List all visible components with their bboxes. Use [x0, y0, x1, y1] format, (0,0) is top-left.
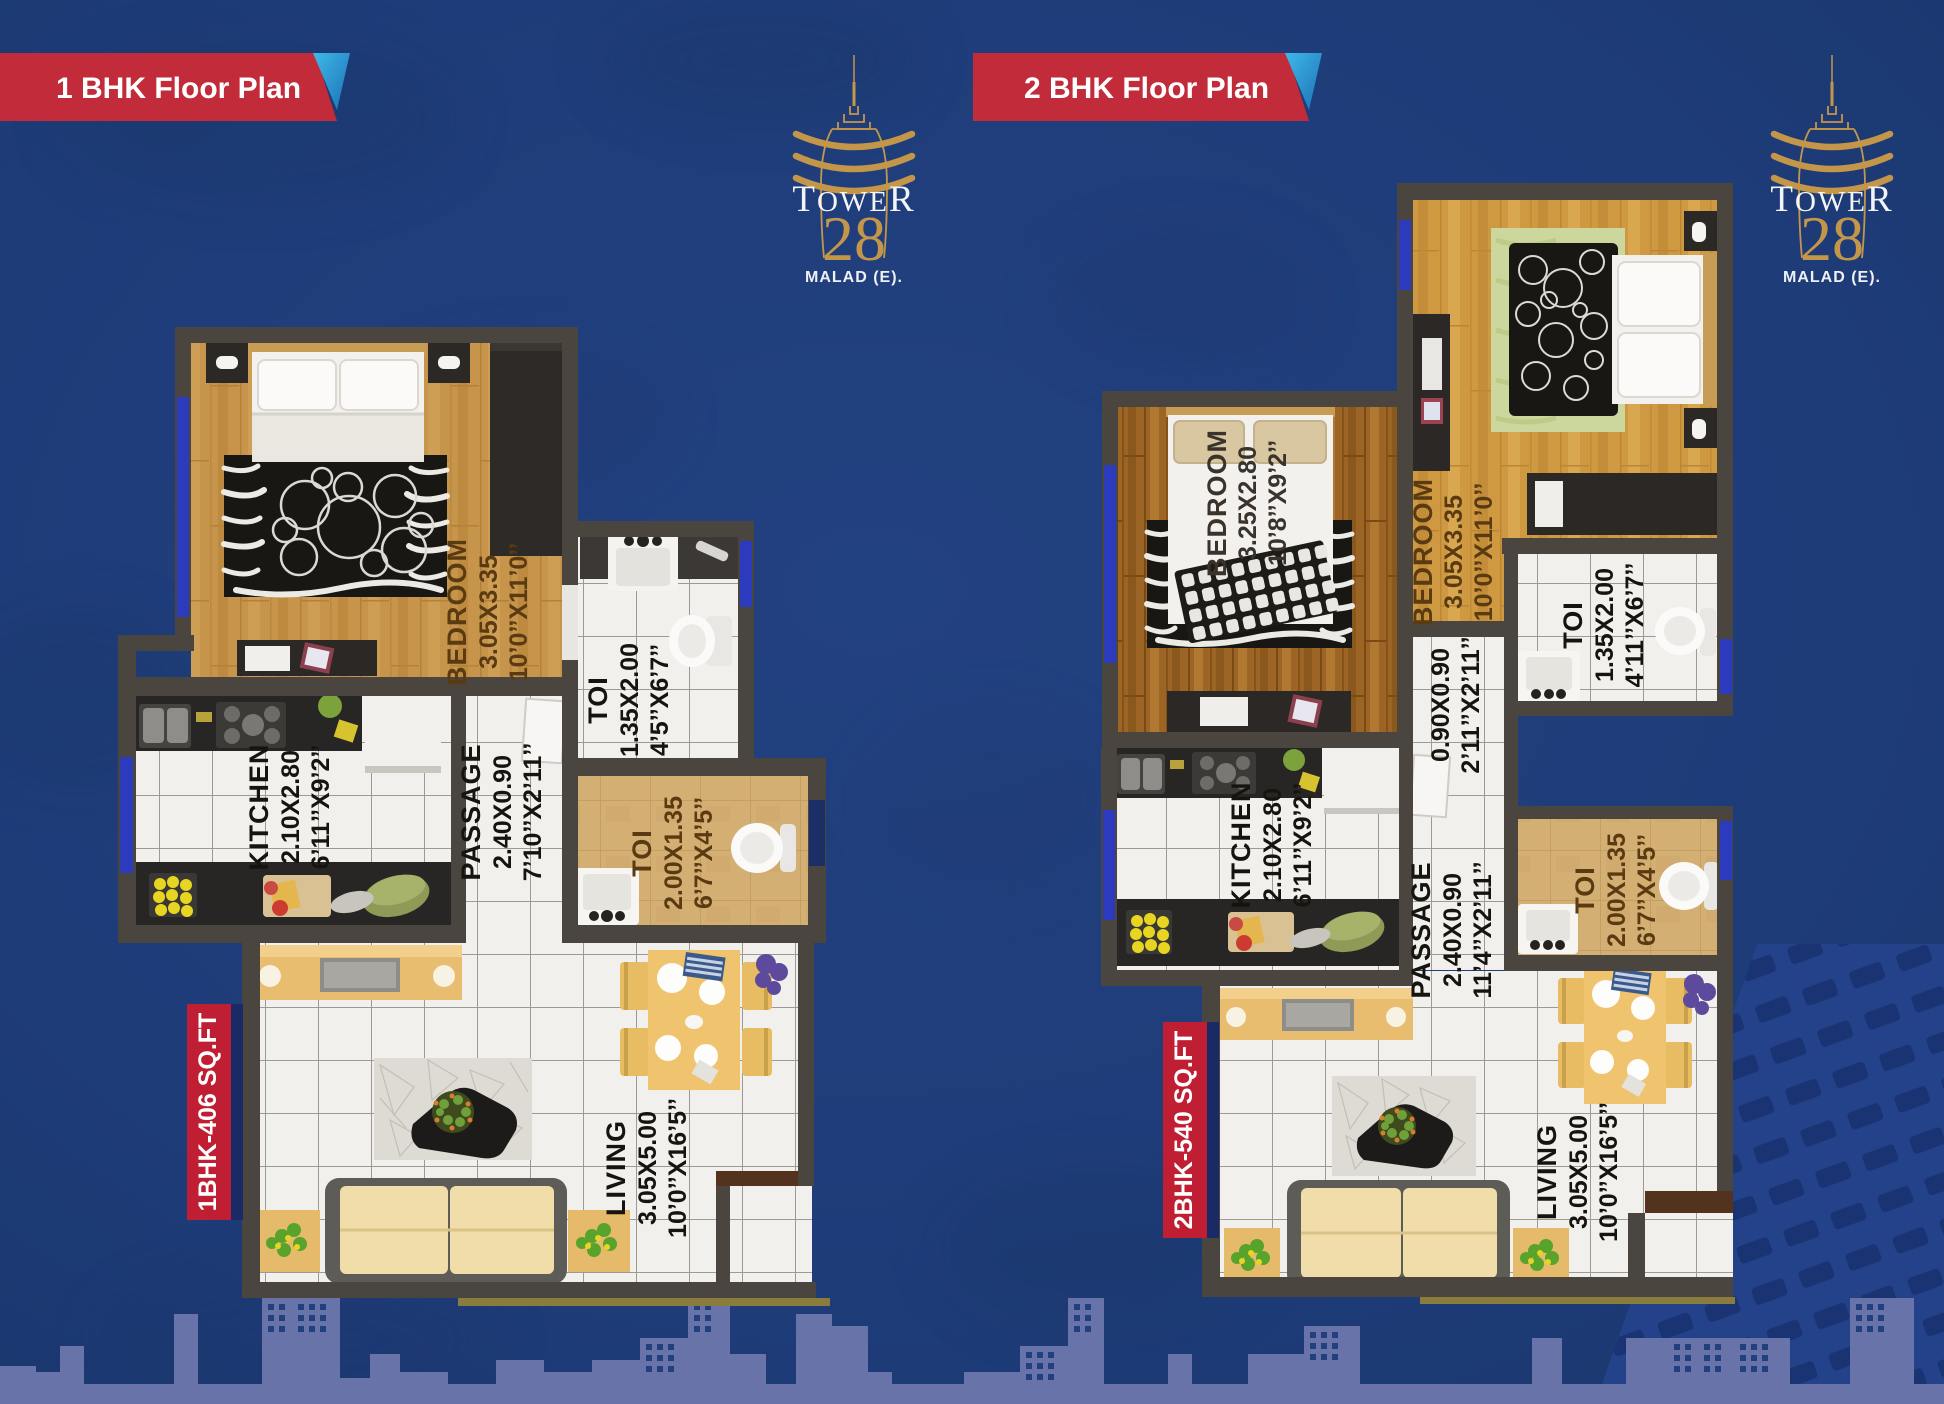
svg-text:28: 28	[1800, 203, 1864, 274]
svg-text:BEDROOM: BEDROOM	[1408, 478, 1438, 626]
svg-text:2.40X0.90: 2.40X0.90	[1439, 873, 1467, 987]
svg-text:1 BHK Floor Plan: 1 BHK Floor Plan	[56, 72, 301, 105]
svg-text:PASSAGE: PASSAGE	[1406, 861, 1436, 998]
svg-text:PASSAGE: PASSAGE	[456, 743, 486, 880]
svg-text:2.40X0.90: 2.40X0.90	[489, 755, 517, 869]
svg-text:3.05X3.35: 3.05X3.35	[475, 555, 503, 669]
svg-text:BEDROOM: BEDROOM	[442, 538, 472, 686]
svg-text:2’11’’X2’11’’: 2’11’’X2’11’’	[1457, 636, 1485, 773]
svg-text:28: 28	[822, 203, 886, 274]
svg-text:11’4’’X2’11’’: 11’4’’X2’11’’	[1469, 861, 1497, 998]
svg-text:7’10’’X2’11’’: 7’10’’X2’11’’	[519, 743, 547, 882]
svg-text:0.90X0.90: 0.90X0.90	[1427, 648, 1455, 762]
svg-text:3.05X5.00: 3.05X5.00	[1565, 1115, 1593, 1229]
svg-text:4’11’’X6’7’’: 4’11’’X6’7’’	[1621, 563, 1649, 688]
svg-text:10’8’’X9’2’’: 10’8’’X9’2’’	[1264, 440, 1292, 566]
svg-text:LIVING: LIVING	[601, 1120, 631, 1216]
svg-text:LIVING: LIVING	[1532, 1124, 1562, 1220]
svg-text:10’0’’X16’5’’: 10’0’’X16’5’’	[664, 1098, 692, 1238]
svg-text:2.00X1.35: 2.00X1.35	[660, 796, 688, 910]
svg-text:6’11’’X9’2’’: 6’11’’X9’2’’	[1289, 783, 1317, 908]
svg-text:3.05X5.00: 3.05X5.00	[634, 1111, 662, 1225]
svg-text:TOI: TOI	[1558, 601, 1588, 649]
svg-text:TOI: TOI	[1570, 866, 1600, 914]
svg-text:3.25X2.80: 3.25X2.80	[1234, 446, 1262, 560]
svg-text:10’0’’X11’0’’: 10’0’’X11’0’’	[505, 543, 533, 682]
svg-text:KITCHEN: KITCHEN	[244, 744, 274, 871]
svg-text:MALAD (E).: MALAD (E).	[1783, 269, 1881, 286]
svg-text:2.10X2.80: 2.10X2.80	[1259, 788, 1287, 902]
svg-text:1.35X2.00: 1.35X2.00	[1591, 568, 1619, 682]
svg-text:1.35X2.00: 1.35X2.00	[616, 643, 644, 757]
svg-text:1BHK-406 SQ.FT: 1BHK-406 SQ.FT	[194, 1013, 222, 1212]
svg-text:6’7’’X4’5’’: 6’7’’X4’5’’	[1633, 834, 1661, 946]
svg-text:2.00X1.35: 2.00X1.35	[1603, 833, 1631, 947]
svg-text:MALAD (E).: MALAD (E).	[805, 269, 903, 286]
svg-text:6’7’’X4’5’’: 6’7’’X4’5’’	[690, 797, 718, 909]
svg-text:KITCHEN: KITCHEN	[1226, 782, 1256, 909]
svg-text:4’5’’X6’7’’: 4’5’’X6’7’’	[646, 644, 674, 756]
svg-text:3.05X3.35: 3.05X3.35	[1440, 495, 1468, 609]
svg-text:TOI: TOI	[627, 829, 657, 877]
svg-text:TOI: TOI	[583, 676, 613, 724]
svg-text:10’0’’X16’5’’: 10’0’’X16’5’’	[1595, 1102, 1623, 1242]
svg-text:2 BHK Floor Plan: 2 BHK Floor Plan	[1024, 72, 1269, 105]
svg-text:2.10X2.80: 2.10X2.80	[277, 750, 305, 864]
svg-text:BEDROOM: BEDROOM	[1202, 429, 1232, 577]
svg-text:6’11’’X9’2’’: 6’11’’X9’2’’	[307, 745, 335, 870]
svg-text:2BHK-540 SQ.FT: 2BHK-540 SQ.FT	[1170, 1031, 1198, 1230]
svg-text:10’0’’X11’0’’: 10’0’’X11’0’’	[1470, 483, 1498, 622]
